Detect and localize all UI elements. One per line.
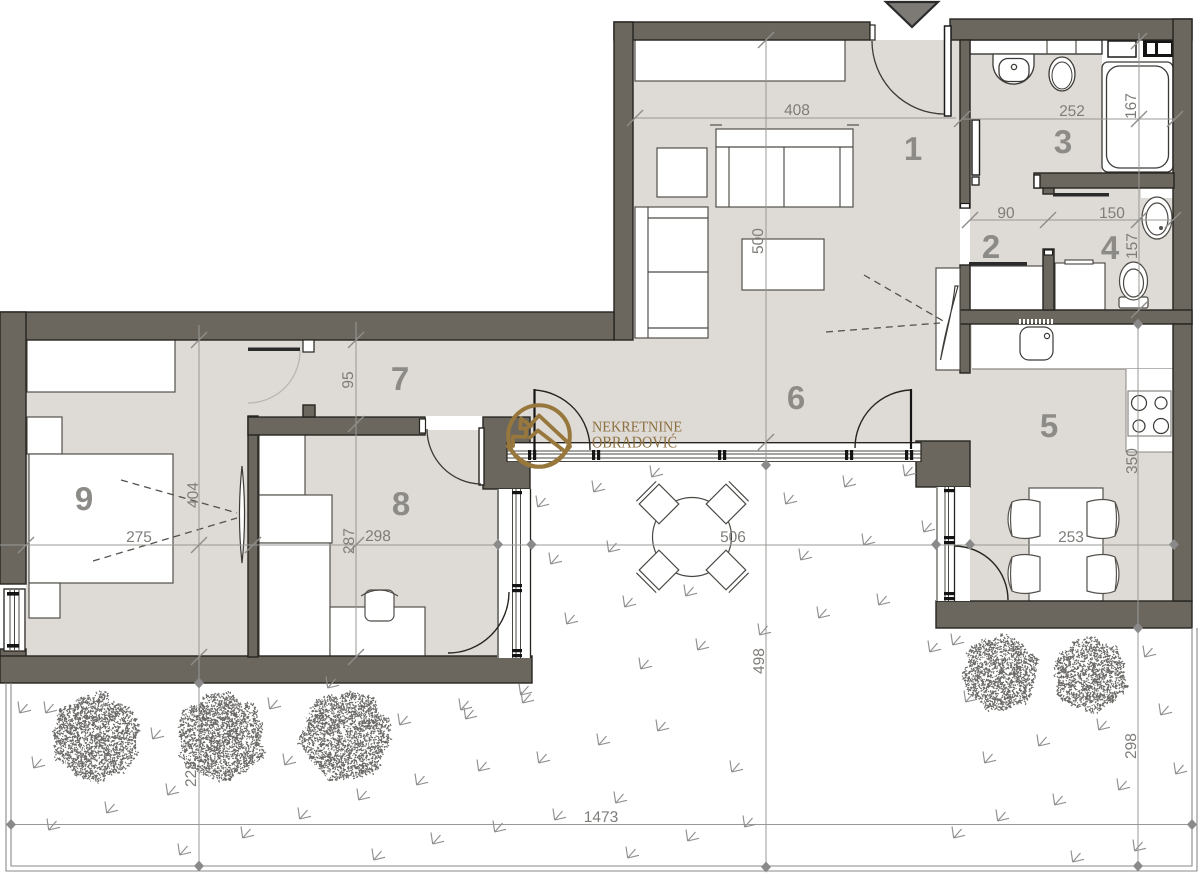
svg-text:287: 287 <box>341 528 358 554</box>
svg-text:OBRADOVIĆ: OBRADOVIĆ <box>592 433 677 452</box>
svg-text:298: 298 <box>365 528 391 545</box>
svg-text:7: 7 <box>391 360 409 397</box>
svg-text:498: 498 <box>751 648 768 674</box>
svg-text:6: 6 <box>787 379 805 416</box>
svg-text:8: 8 <box>392 485 410 522</box>
svg-text:252: 252 <box>1059 103 1085 120</box>
svg-text:253: 253 <box>1058 529 1084 546</box>
svg-text:5: 5 <box>1040 407 1058 444</box>
svg-text:298: 298 <box>1123 733 1140 759</box>
svg-text:3: 3 <box>1054 123 1072 160</box>
svg-text:500: 500 <box>750 228 767 254</box>
svg-text:350: 350 <box>1124 448 1141 474</box>
svg-text:9: 9 <box>75 480 93 517</box>
svg-text:275: 275 <box>126 529 152 546</box>
svg-text:1: 1 <box>904 130 922 167</box>
svg-text:150: 150 <box>1099 205 1125 222</box>
svg-text:95: 95 <box>340 371 357 388</box>
svg-text:1473: 1473 <box>584 809 618 826</box>
svg-text:408: 408 <box>784 102 810 119</box>
svg-text:506: 506 <box>720 529 746 546</box>
svg-text:157: 157 <box>1124 233 1141 259</box>
svg-text:167: 167 <box>1123 93 1140 119</box>
svg-text:404: 404 <box>185 482 202 508</box>
svg-text:4: 4 <box>1101 229 1120 266</box>
svg-text:2: 2 <box>982 228 1000 265</box>
svg-text:90: 90 <box>997 205 1015 222</box>
